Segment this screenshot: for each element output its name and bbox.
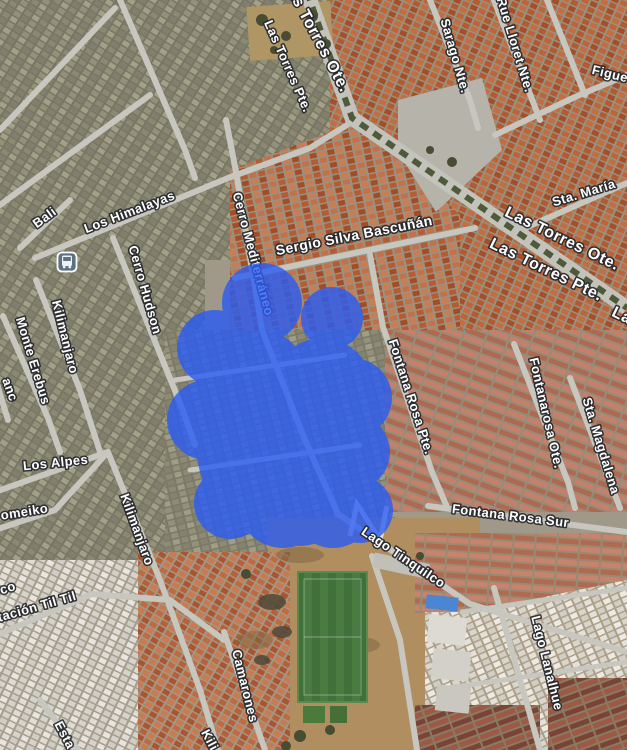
- soccer-field: [298, 572, 367, 723]
- satellite-map: Cerro Mediterráneo Las Torres Ote. Las T…: [0, 0, 627, 750]
- satellite-map-viewport[interactable]: Cerro Mediterráneo Las Torres Ote. Las T…: [0, 0, 627, 750]
- bus-stop-marker[interactable]: [58, 253, 77, 272]
